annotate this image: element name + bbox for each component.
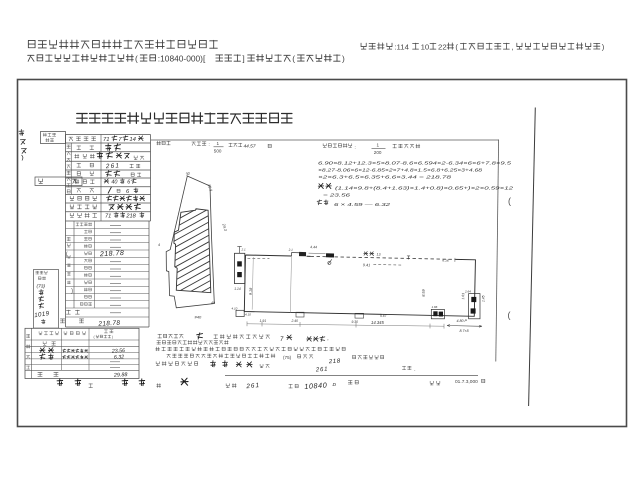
svg-text:200: 200	[374, 150, 382, 155]
svg-text:= 23.56: = 23.56	[323, 192, 351, 197]
svg-text:14: 14	[129, 137, 136, 143]
svg-text:4.10: 4.10	[245, 313, 251, 317]
svg-text:6.32: 6.32	[114, 354, 125, 361]
svg-text:×8.27-8.06×6×12-6.85×2×7+4.8×1: ×8.27-8.06×6×12-6.85×2×7+4.8×1.5×6.8+6.2…	[318, 167, 483, 172]
svg-text:8.7×5: 8.7×5	[460, 329, 469, 333]
svg-text:9.41: 9.41	[363, 263, 370, 267]
svg-text:29.88: 29.88	[113, 372, 128, 379]
svg-text:1.63: 1.63	[461, 293, 465, 300]
svg-text:4: 4	[158, 243, 160, 247]
svg-text:8.59: 8.59	[422, 288, 426, 296]
svg-text:500: 500	[214, 149, 222, 154]
svg-text:10840: 10840	[304, 380, 328, 391]
svg-text:5.67: 5.67	[380, 314, 387, 318]
svg-text:(: (	[508, 310, 511, 320]
svg-text:): )	[342, 53, 345, 63]
svg-text:13: 13	[376, 253, 380, 257]
svg-text:#40: #40	[195, 315, 202, 320]
svg-text:218: 218	[328, 359, 341, 366]
svg-text:D: D	[333, 382, 337, 388]
svg-text:6 × 4.59 — 6.32: 6 × 4.59 — 6.32	[334, 202, 391, 207]
svg-text:14.345: 14.345	[371, 320, 384, 325]
svg-text:261: 261	[315, 367, 329, 374]
svg-text:71: 71	[103, 137, 110, 143]
svg-text:1: 1	[377, 143, 380, 148]
svg-text:10: 10	[421, 42, 430, 51]
svg-text:40: 40	[111, 179, 117, 185]
svg-text:71: 71	[105, 213, 111, 219]
svg-text:(: (	[455, 42, 458, 51]
svg-text:): )	[602, 42, 605, 51]
svg-text:1.66: 1.66	[432, 305, 438, 309]
svg-text:]: ]	[242, 53, 244, 63]
svg-text:49: 49	[211, 301, 215, 305]
svg-text:6.16: 6.16	[442, 259, 449, 263]
svg-text:4.44: 4.44	[310, 245, 317, 249]
svg-text:2.40: 2.40	[291, 319, 299, 323]
svg-text:218.78: 218.78	[99, 250, 125, 258]
svg-text:×2×6.3+6.5×6.35+6.6×3.44 = 218: ×2×6.3+6.5×6.35+6.6×3.44 = 218.78	[318, 174, 452, 179]
svg-text::114: :114	[394, 42, 409, 51]
svg-text:2.1: 2.1	[288, 248, 294, 252]
svg-text:2.1: 2.1	[241, 248, 247, 252]
svg-text:(: (	[135, 53, 138, 63]
svg-text::: :	[355, 145, 356, 150]
svg-text:4.10: 4.10	[232, 306, 238, 310]
svg-text:(73): (73)	[37, 284, 46, 290]
svg-text:4.80 P: 4.80 P	[457, 319, 468, 323]
svg-text:(: (	[292, 53, 295, 63]
svg-text:44.57: 44.57	[244, 144, 256, 150]
svg-text:2.64: 2.64	[464, 290, 471, 294]
svg-text:218.78: 218.78	[97, 320, 120, 328]
svg-text:9.18: 9.18	[249, 287, 253, 295]
svg-text:(1.14×9.8+(8.4+1.63)×1.4+0.8)×: (1.14×9.8+(8.4+1.63)×1.4+0.8)×0.65+)×2×0…	[335, 185, 514, 190]
svg-text:01.7.3,000: 01.7.3,000	[455, 379, 478, 385]
svg-text:9.30: 9.30	[352, 320, 359, 324]
svg-text:1: 1	[217, 141, 220, 146]
svg-text:1.91: 1.91	[260, 319, 267, 323]
svg-text::10840-000)[: :10840-000)[	[158, 53, 206, 63]
svg-text:): )	[112, 335, 113, 339]
svg-text::: :	[209, 142, 210, 147]
svg-text:(75): (75)	[283, 355, 292, 360]
svg-text:218: 218	[125, 213, 136, 219]
svg-text:261: 261	[245, 382, 260, 390]
svg-text:1.14: 1.14	[234, 287, 241, 291]
svg-text:(: (	[508, 196, 511, 206]
svg-text:6.90×8.12+12.3×5×8.07-8.6×6.59: 6.90×8.12+12.3×5×8.07-8.6×6.594×2-6.34×6…	[318, 160, 512, 165]
svg-text:261: 261	[105, 162, 121, 170]
svg-text:1.45: 1.45	[482, 295, 486, 302]
svg-text:,: ,	[511, 42, 513, 51]
svg-text:22: 22	[438, 42, 447, 51]
